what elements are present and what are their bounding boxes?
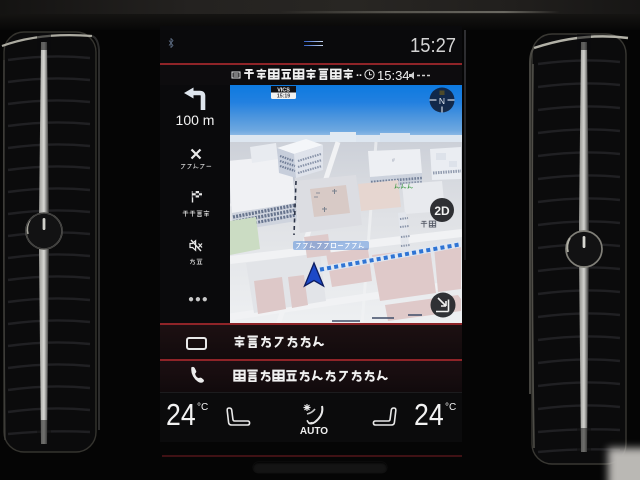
- svg-text:N: N: [439, 96, 445, 106]
- svg-text:15:19: 15:19: [277, 93, 290, 99]
- svg-text:#: #: [392, 158, 395, 164]
- svg-text:2D: 2D: [434, 204, 450, 218]
- svg-text:VICS: VICS: [277, 87, 290, 93]
